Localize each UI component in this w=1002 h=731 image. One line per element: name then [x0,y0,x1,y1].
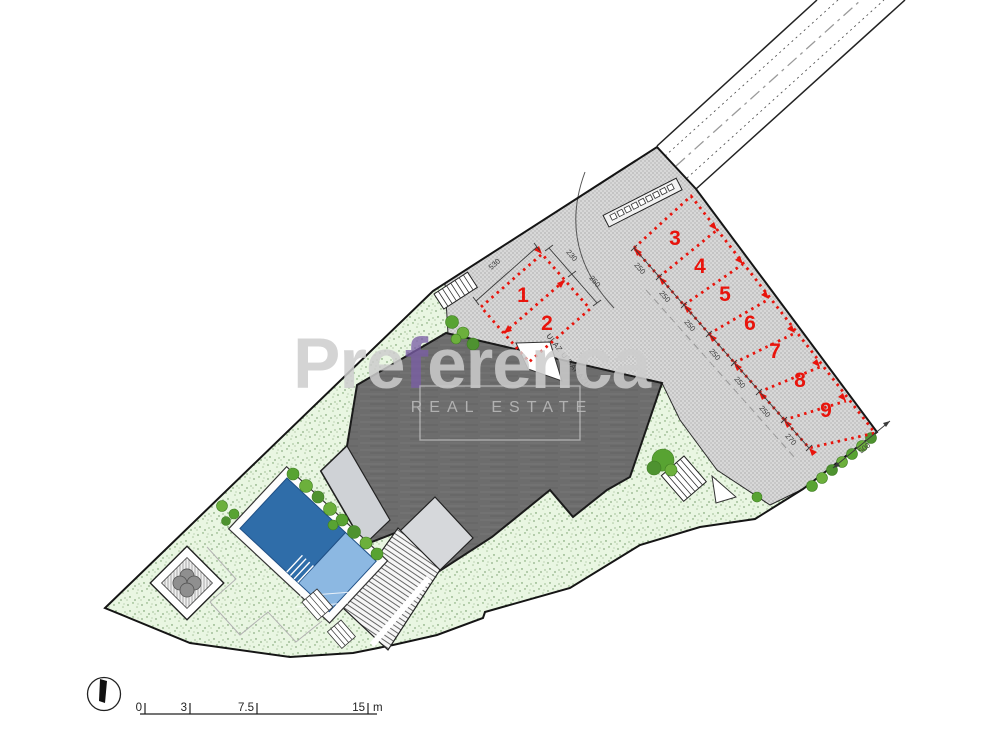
parking-space-number: 1 [517,284,529,307]
scale-tick-label: 0 [136,702,142,714]
site-plan-page: ULAZ U GARAŽU [0,0,1002,731]
bush-terrace [328,520,338,530]
road-surface [657,0,905,189]
parking-space-number: 5 [719,283,731,306]
scale-tick-label: 15 [352,702,365,714]
scale-tick-label: 3 [181,702,187,714]
north-arrow-icon [88,678,121,711]
scale-unit-label: m [373,702,383,714]
watermark-brand: Preferenca [293,325,652,404]
watermark-subtitle: REAL ESTATE [411,399,594,416]
parking-space-number: 3 [669,227,681,250]
road-shoulder-dotted-line [687,0,884,178]
access-road [657,0,905,189]
scale-bar: 0 3 7.5 15 m [136,702,383,714]
parking-space-number: 9 [820,399,832,422]
parking-space-number: 4 [694,255,706,278]
parking-space-number: 6 [744,312,756,335]
parking-space-number: 8 [794,369,806,392]
parking-space-number: 7 [769,340,781,363]
scale-tick-label: 7.5 [238,702,254,714]
site-plan-drawing: ULAZ U GARAŽU [0,0,1002,731]
